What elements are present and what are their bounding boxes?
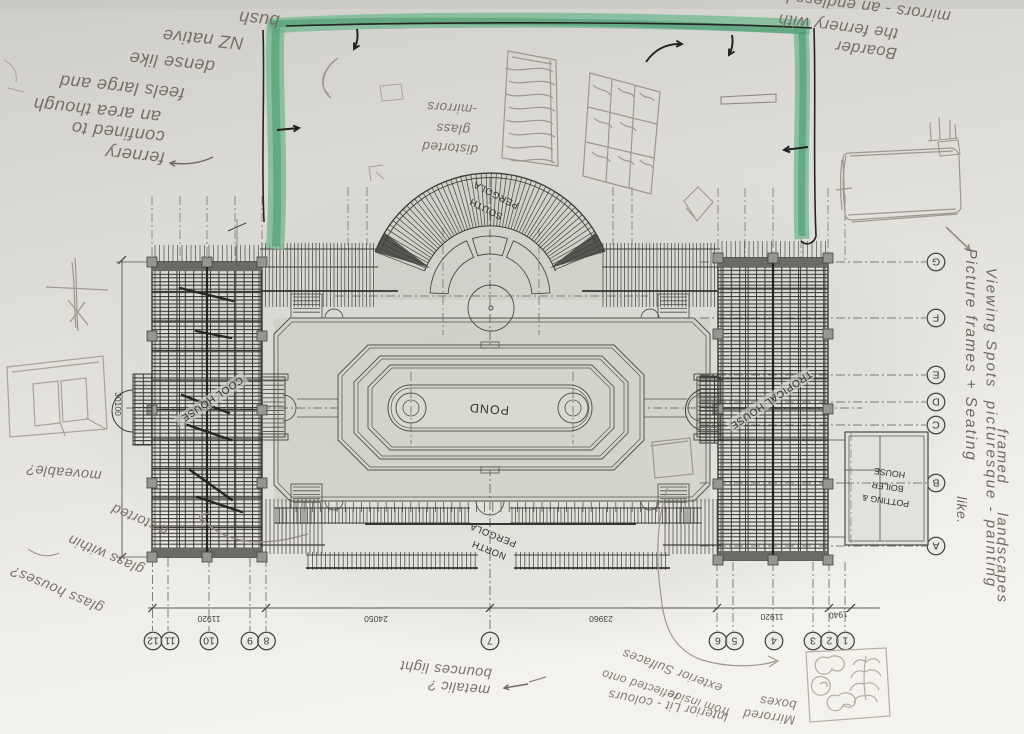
svg-text:11920: 11920 <box>197 614 220 624</box>
svg-text:4: 4 <box>771 634 777 646</box>
svg-text:10: 10 <box>203 634 215 646</box>
svg-text:F: F <box>933 311 939 323</box>
svg-text:11: 11 <box>164 634 175 646</box>
svg-text:E: E <box>932 368 939 380</box>
svg-text:9: 9 <box>247 634 253 646</box>
svg-text:1: 1 <box>842 634 848 646</box>
svg-text:D: D <box>932 395 940 407</box>
svg-text:8: 8 <box>263 634 269 646</box>
svg-text:6: 6 <box>715 634 721 646</box>
svg-text:3: 3 <box>810 634 816 646</box>
svg-text:7: 7 <box>487 634 493 646</box>
svg-text:5: 5 <box>731 634 737 646</box>
svg-text:23960: 23960 <box>589 614 613 624</box>
svg-text:1940: 1940 <box>828 609 848 621</box>
svg-text:B: B <box>932 476 939 488</box>
svg-text:A: A <box>932 539 939 551</box>
svg-text:2: 2 <box>826 634 832 646</box>
svg-text:C: C <box>932 418 940 430</box>
svg-text:G: G <box>932 255 940 267</box>
svg-text:24050: 24050 <box>364 614 388 624</box>
svg-text:12: 12 <box>147 634 159 646</box>
svg-text:11920: 11920 <box>760 612 783 622</box>
svg-text:POND: POND <box>468 401 509 418</box>
